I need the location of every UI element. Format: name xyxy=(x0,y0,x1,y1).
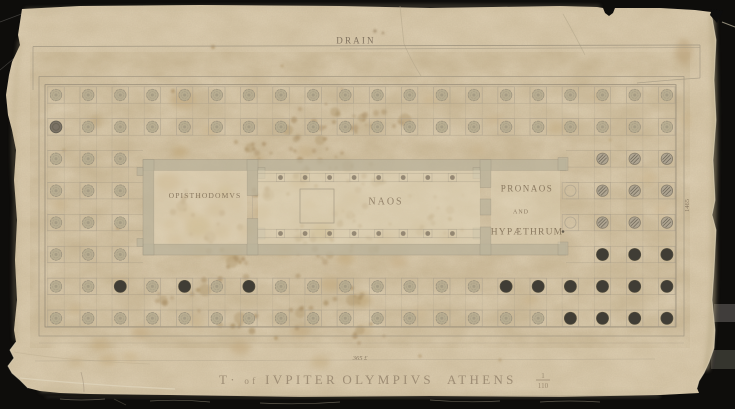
svg-text:AND: AND xyxy=(513,210,529,216)
svg-text:110: 110 xyxy=(538,382,549,390)
svg-text:HYPÆTHRUM: HYPÆTHRUM xyxy=(491,228,564,238)
svg-text:T· of IVPITER OLYMPIVS ATHENS: T· of IVPITER OLYMPIVS ATHENS xyxy=(219,372,517,387)
svg-text:OPISTHODOMVS: OPISTHODOMVS xyxy=(169,191,242,200)
svg-text:DRAIN: DRAIN xyxy=(336,36,376,46)
svg-text:NAOS: NAOS xyxy=(368,197,403,208)
svg-text:1465: 1465 xyxy=(684,199,691,212)
svg-text:1: 1 xyxy=(541,372,545,380)
svg-text:365 £: 365 £ xyxy=(352,355,368,362)
svg-text:PRONAOS: PRONAOS xyxy=(501,184,554,194)
